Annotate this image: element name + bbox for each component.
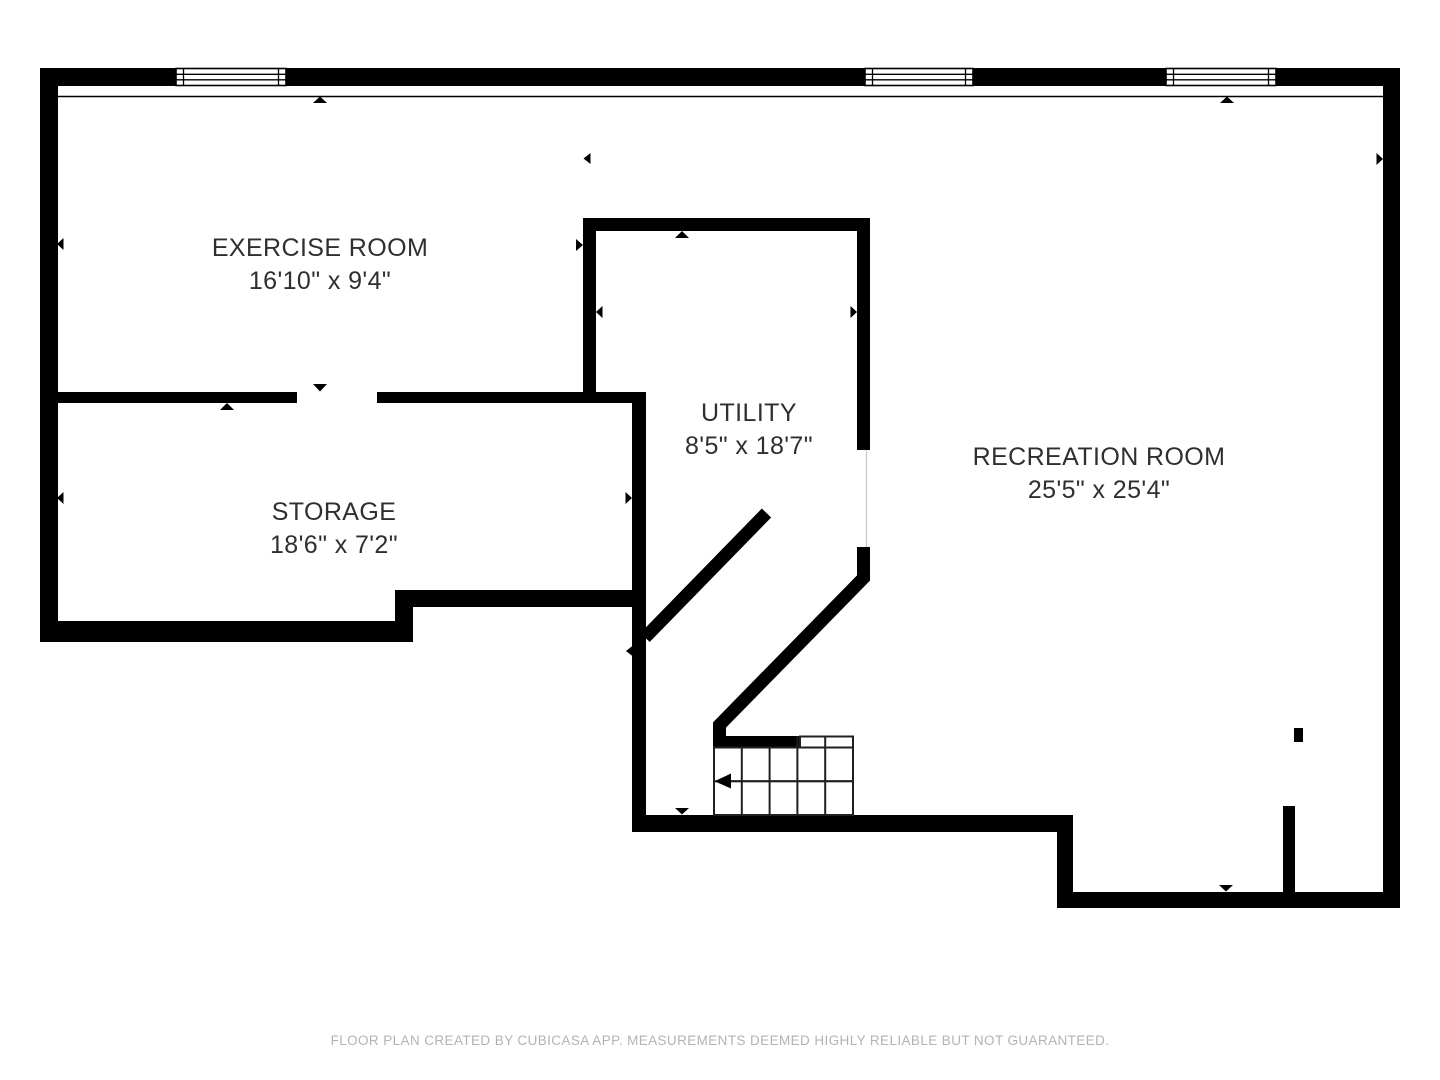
measure-arrow-left-utility-icon [596, 306, 603, 318]
stairwell-left-wall [632, 392, 646, 832]
footer-disclaimer: FLOOR PLAN CREATED BY CUBICASA APP. MEAS… [0, 1033, 1440, 1048]
measure-arrow-up-recreation-icon [1220, 97, 1234, 104]
room-name-storage: STORAGE [270, 496, 398, 529]
room-label-utility: UTILITY 8'5" x 18'7" [685, 397, 813, 463]
room-name-exercise-room: EXERCISE ROOM [212, 232, 428, 265]
measure-arrow-up-utility-icon [675, 231, 689, 238]
window-top-middle [865, 69, 973, 86]
storage-bottom-wall [40, 621, 413, 642]
measure-arrow-down-recreation-icon [1219, 885, 1233, 892]
exercise-storage-divider-left [58, 392, 297, 403]
bottom-wall-mid [632, 815, 1073, 832]
exterior-wall-bottom-right [1057, 892, 1400, 908]
recreation-door-jamb [1294, 728, 1303, 742]
room-name-recreation-room: RECREATION ROOM [973, 441, 1226, 474]
window-top-right [1166, 69, 1276, 86]
measure-arrow-right-storage-icon [626, 492, 633, 504]
floor-plan-drawing [0, 0, 1440, 1080]
stair-top-wall-bar [713, 736, 800, 748]
room-label-storage: STORAGE 18'6" x 7'2" [270, 496, 398, 562]
utility-left-wall [583, 218, 596, 403]
stair-upper-diagonal-wall [645, 513, 767, 638]
room-label-exercise-room: EXERCISE ROOM 16'10" x 9'4" [212, 232, 428, 298]
measure-arrow-down-door-icon [313, 384, 327, 392]
room-name-utility: UTILITY [685, 397, 813, 430]
recreation-door-wall-stub [1283, 806, 1295, 892]
room-dimensions-exercise-room: 16'10" x 9'4" [212, 265, 428, 298]
measure-arrow-left-recreation-icon [584, 153, 591, 164]
measure-arrow-down-stairhall-icon [675, 808, 689, 815]
room-dimensions-storage: 18'6" x 7'2" [270, 529, 398, 562]
floor-plan-page: EXERCISE ROOM 16'10" x 9'4" STORAGE 18'6… [0, 0, 1440, 1080]
utility-right-wall-upper [857, 218, 870, 450]
room-dimensions-recreation-room: 25'5" x 25'4" [973, 474, 1226, 507]
measure-arrow-up-exercise-icon [313, 97, 327, 104]
storage-bottom-right-wall [395, 590, 646, 607]
exercise-storage-divider-right [377, 392, 646, 403]
staircase [714, 737, 853, 816]
room-dimensions-utility: 8'5" x 18'7" [685, 430, 813, 463]
measure-arrow-right-utility-icon [851, 306, 858, 318]
exterior-wall-right [1383, 68, 1400, 908]
measure-arrow-left-stairwell-icon [626, 646, 633, 657]
measure-arrow-up-storage-icon [220, 403, 234, 410]
window-top-left [176, 69, 286, 86]
utility-top-wall [583, 218, 870, 231]
utility-right-wall-lower-diagonal [720, 547, 864, 748]
measure-arrow-right-recreation-icon [1377, 153, 1384, 165]
room-label-recreation-room: RECREATION ROOM 25'5" x 25'4" [973, 441, 1226, 507]
exterior-wall-left [40, 68, 58, 642]
stair-landing [800, 737, 853, 748]
measure-arrow-right-exercise-icon [576, 239, 583, 251]
